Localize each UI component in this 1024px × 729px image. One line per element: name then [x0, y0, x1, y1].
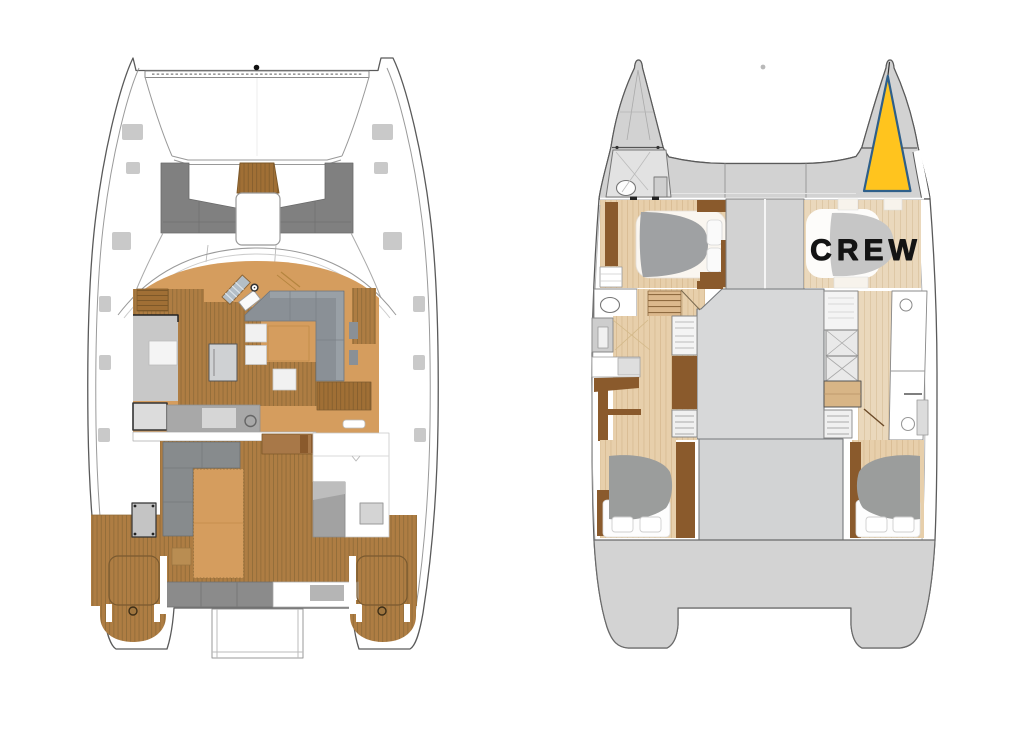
svg-text:CREW: CREW — [810, 234, 922, 267]
